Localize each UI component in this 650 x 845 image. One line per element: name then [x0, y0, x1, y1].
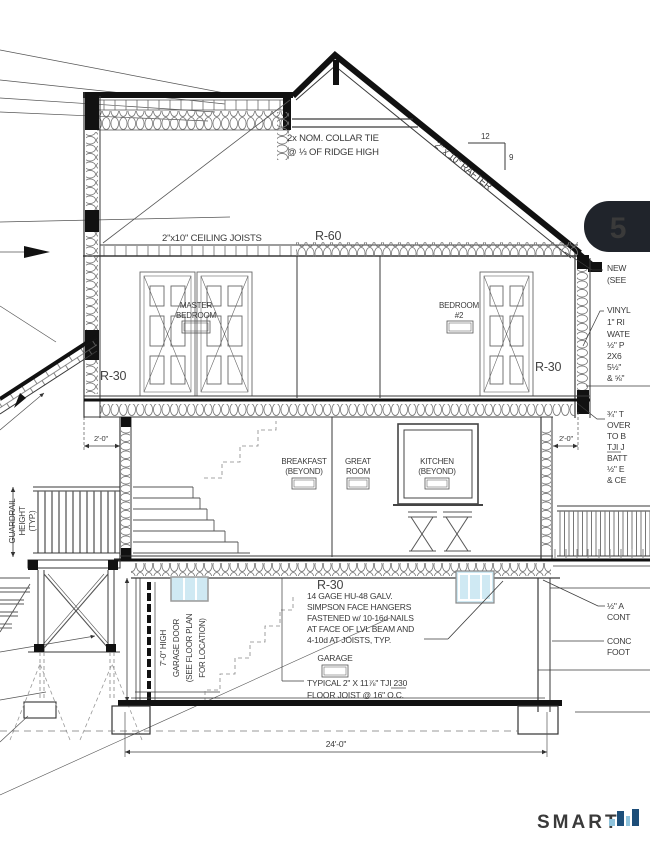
tji-note-line1: TYPICAL 2" X 11⅞" TJI 230 — [307, 678, 408, 688]
garage-level: 7'-0" HIGH GARAGE DOOR (SEE FLOOR PLAN F… — [127, 571, 650, 712]
breakfast-room-tag — [292, 478, 316, 489]
note-subfloor-line7: & CE — [607, 475, 627, 485]
attic-insulation-label: R-60 — [315, 229, 342, 243]
note-subfloor-line2: OVER — [607, 420, 630, 430]
note-new-line1: NEW — [607, 263, 626, 273]
smart-logo-bar-1 — [609, 819, 615, 826]
right-deck-rail — [557, 506, 650, 556]
breakfast-label-line1: BREAKFAST — [281, 457, 327, 466]
bedroom2-label-line1: BEDROOM — [439, 301, 479, 310]
garage-floor-insulation-label: R-30 — [317, 578, 344, 592]
r30-left-label: R-30 — [100, 369, 127, 383]
collar-tie-note-line1: 2x NOM. COLLAR TIE — [287, 133, 379, 144]
note-subfloor-line3: TO B — [607, 431, 626, 441]
garage-door-note-line4: FOR LOCATION) — [198, 618, 207, 678]
r30-right-label: R-30 — [535, 360, 562, 374]
hanger-note-line3: FASTENED w/ 10-16d NAILS — [307, 613, 414, 623]
upper-floor-band — [84, 386, 650, 417]
note-vinyl-line2: 1" RI — [607, 317, 625, 327]
great-room-label-line1: GREAT — [345, 457, 371, 466]
roof: 2x NOM. COLLAR TIE @ ⅓ OF RIDGE HIGH 2" … — [83, 55, 602, 272]
guardrail-note-line3: (TYP.) — [28, 510, 37, 531]
master-bedroom-label-line1: MASTER — [180, 301, 213, 310]
overhang-dim-left: 2'-0" — [94, 434, 108, 443]
smart-logo-bar-4 — [632, 809, 639, 826]
bedroom2-label-line2: #2 — [455, 311, 464, 320]
master-bedroom-label-line2: BEDROOM — [176, 311, 216, 320]
interior-stair — [133, 421, 276, 553]
deck-x-bracing — [40, 574, 112, 648]
porch-roof — [0, 336, 97, 414]
kitchen-room-tag — [425, 478, 449, 489]
note-vinyl-line6: 5½" — [607, 362, 621, 372]
slope-rise-label: 12 — [481, 132, 490, 141]
slope-run-label: 9 — [509, 153, 514, 162]
smart-logo-text: SMART — [537, 812, 620, 833]
master-bedroom-doors — [140, 272, 252, 396]
bedroom2-door — [480, 272, 533, 396]
note-vinyl-line3: WATE — [607, 329, 630, 339]
note-anchor-line2: CONT — [607, 612, 630, 622]
overhang-dim-right: 2'-0" — [559, 434, 573, 443]
smart-logo-bar-3 — [626, 816, 630, 826]
note-anchor-line1: ½" A — [607, 601, 624, 611]
hanger-note-line5: 4-10d AT JOISTS, TYP. — [307, 635, 391, 645]
overall-width-dim: 24'-0" — [326, 739, 347, 749]
note-vinyl-line7: & ⅝" — [607, 373, 625, 383]
drawing-sheet: 2x NOM. COLLAR TIE @ ⅓ OF RIDGE HIGH 2" … — [0, 0, 650, 845]
collar-tie-note-line2: @ ⅓ OF RIDGE HIGH — [287, 147, 379, 158]
note-footing-line2: FOOT — [607, 647, 630, 657]
note-subfloor-line6: ½" E — [607, 464, 625, 474]
kitchen-label-line2: (BEYOND) — [418, 467, 456, 476]
guardrail-note-line1: GUARDRAIL — [8, 498, 17, 544]
note-subfloor-line4: TJI J — [607, 442, 624, 452]
bar-stools — [408, 512, 472, 551]
breakfast-label-line2: (BEYOND) — [285, 467, 323, 476]
note-vinyl-line1: VINYL — [607, 305, 631, 315]
note-subfloor-line1: ¾" T — [607, 409, 624, 419]
bedroom2-room-tag — [447, 321, 473, 333]
rafter-label: 2" x 10" RAFTER — [432, 140, 494, 193]
great-room-label-line2: ROOM — [346, 467, 371, 476]
main-floor: 2'-0" 2'-0" BREAKFAST (BEYOND) GREAT ROO… — [8, 412, 650, 560]
detail-badge: 5 — [584, 201, 650, 252]
smart-logo-bar-2 — [617, 811, 624, 826]
garage-window — [456, 571, 494, 603]
left-deck — [0, 560, 142, 740]
detail-badge-number: 5 — [610, 212, 627, 245]
note-new-line2: (SEE — [607, 275, 627, 285]
stairwell-window — [171, 577, 208, 601]
hanger-note-line4: AT FACE OF LVL BEAM AND — [307, 624, 414, 634]
section-drawing: 2x NOM. COLLAR TIE @ ⅓ OF RIDGE HIGH 2" … — [0, 0, 650, 845]
note-vinyl-line4: ½" P — [607, 340, 625, 350]
hanger-note-line1: 14 GAGE HU-48 GALV. — [307, 591, 393, 601]
tji-note-line2: FLOOR JOIST @ 16" O.C. — [307, 690, 404, 700]
guardrail-note-line2: HEIGHT — [18, 506, 27, 535]
note-footing-line1: CONC — [607, 636, 631, 646]
note-subfloor-line5: BATT — [607, 453, 627, 463]
foundation: 24'-0" — [0, 698, 650, 757]
garage-room-label: GARAGE — [317, 653, 353, 663]
garage-door-note-line2: GARAGE DOOR — [172, 618, 181, 677]
smart-logo: SMART — [537, 809, 639, 833]
garage-door-note-line1: 7'-0" HIGH — [159, 630, 168, 667]
hanger-note-line2: SIMPSON FACE HANGERS — [307, 602, 412, 612]
level-marker-arrow — [24, 246, 50, 258]
garage-room-tag — [322, 665, 348, 677]
note-vinyl-line5: 2X6 — [607, 351, 622, 361]
master-bedroom-room-tag — [182, 321, 210, 333]
garage-door-note-line3: (SEE FLOOR PLAN — [185, 613, 194, 682]
kitchen-label-line1: KITCHEN — [420, 457, 454, 466]
ceiling-joist-label: 2"x10" CEILING JOISTS — [162, 233, 262, 244]
great-room-tag — [347, 478, 369, 489]
exterior-stair — [0, 578, 30, 632]
